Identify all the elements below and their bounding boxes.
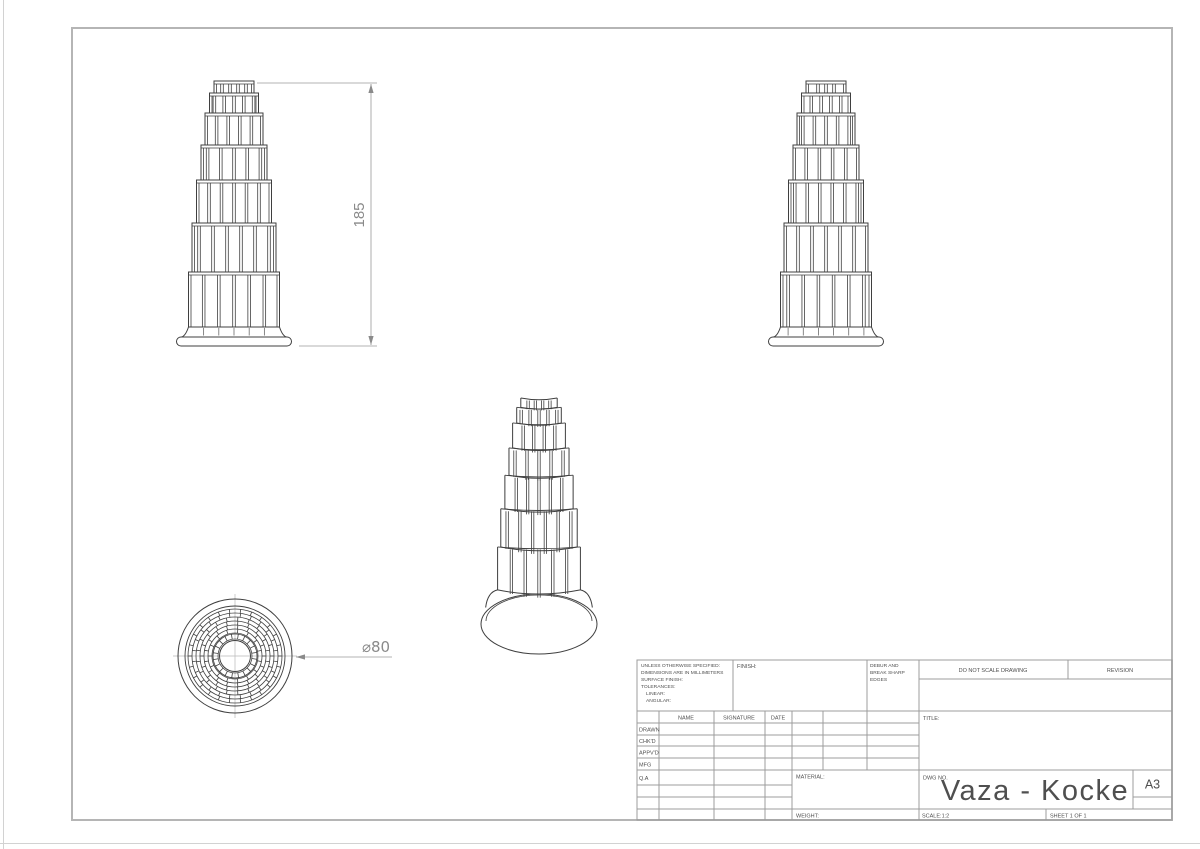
row-label-qa: Q.A xyxy=(639,776,649,782)
drawing-sheet-page: 185 ⌀80 UNLESS OTHERWISE SPECIFIED: DIME… xyxy=(0,0,1200,849)
finish-label: FINISH: xyxy=(737,664,757,670)
height-dimension-label: 185 xyxy=(351,202,368,227)
signature-column-header: SIGNATURE xyxy=(723,716,755,722)
spec-line-5: LINEAR: xyxy=(646,691,665,697)
debur-line-2: BREAK SHARP xyxy=(870,670,905,676)
diameter-dimension-label: ⌀80 xyxy=(362,638,390,656)
revision-label: REVISION xyxy=(1107,668,1133,674)
weight-label: WEIGHT: xyxy=(796,814,819,820)
paper xyxy=(0,0,1200,849)
spec-line-6: ANGULAR: xyxy=(646,698,671,704)
name-column-header: NAME xyxy=(678,716,694,722)
drawing-sheet: 185 ⌀80 UNLESS OTHERWISE SPECIFIED: DIME… xyxy=(0,0,1200,849)
paper-size-label: A3 xyxy=(1145,778,1160,792)
date-column-header: DATE xyxy=(771,716,786,722)
material-label: MATERIAL: xyxy=(796,775,825,781)
debur-line-3: EDGES xyxy=(870,677,888,683)
scale-label: SCALE:1:2 xyxy=(922,814,949,820)
spec-line-3: SURFACE FINISH: xyxy=(641,677,683,683)
row-label-drawn: DRAWN xyxy=(639,728,660,734)
title-label: TITLE: xyxy=(923,716,940,722)
spec-line-4: TOLERANCES: xyxy=(641,684,675,690)
spec-line-1: UNLESS OTHERWISE SPECIFIED: xyxy=(641,663,720,669)
drawing-title: Vaza - Kocke xyxy=(941,775,1129,807)
row-label-mfg: MFG xyxy=(639,763,651,769)
row-label-chkd: CHK'D xyxy=(639,739,656,745)
spec-line-2: DIMENSIONS ARE IN MILLIMETERS xyxy=(641,670,724,676)
sheet-label: SHEET 1 OF 1 xyxy=(1050,814,1087,820)
row-label-appvd: APPV'D xyxy=(639,751,659,757)
do-not-scale-label: DO NOT SCALE DRAWING xyxy=(959,668,1028,674)
debur-line-1: DEBUR AND xyxy=(870,663,899,669)
